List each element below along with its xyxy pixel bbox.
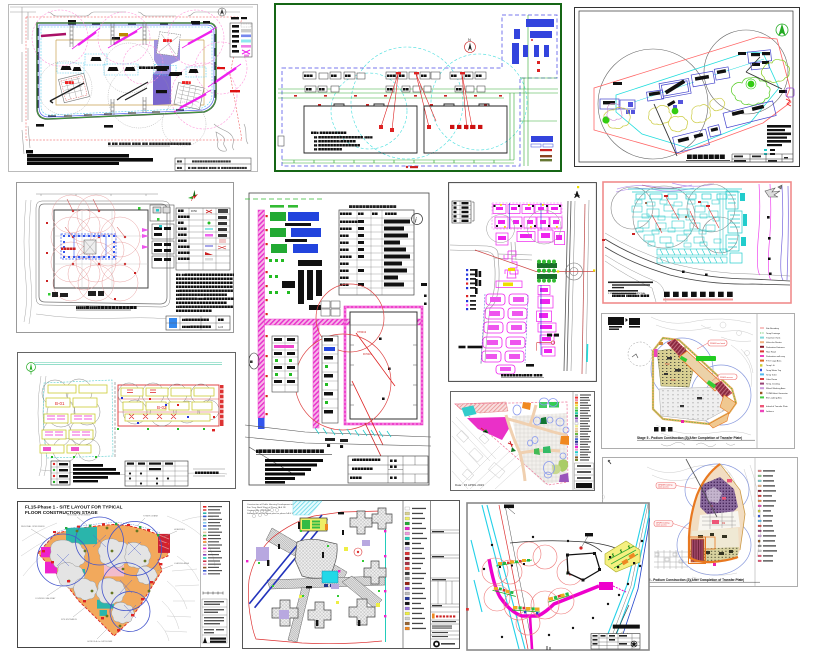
svg-text:TC3: TC3 [671, 379, 676, 382]
svg-text:B-01: B-01 [55, 401, 65, 406]
svg-text:Temp Water Tap: Temp Water Tap [766, 369, 782, 372]
svg-text:2N16F haul road: 2N16F haul road [710, 343, 725, 345]
svg-text:Pedestrian Entrance: Pedestrian Entrance [766, 346, 786, 349]
svg-text:FL15-Phase 1 - SITE LAYOUT FOR: FL15-Phase 1 - SITE LAYOUT FOR TYPICAL [25, 505, 123, 510]
svg-text:TC/MB Hoist Generator: TC/MB Hoist Generator [766, 392, 788, 395]
svg-text:TOWER CRANE: TOWER CRANE [143, 515, 159, 518]
svg-text:TC2: TC2 [665, 363, 670, 366]
svg-text:REGIONAL OPEN SPACE: REGIONAL OPEN SPACE [67, 514, 91, 517]
svg-text:Temp Toilet: Temp Toilet [766, 373, 777, 376]
svg-text:LOADING AREA: LOADING AREA [174, 562, 190, 565]
svg-text:Temp Lift: Temp Lift [766, 364, 775, 367]
svg-text:Temp. Desking: Temp. Desking [766, 384, 781, 386]
svg-text:P.T.O Cage Area: P.T.O Cage Area [766, 360, 782, 363]
svg-text:REGIONAL OPEN SPACE: REGIONAL OPEN SPACE [21, 525, 45, 528]
svg-text:Wheel Washing Area: Wheel Washing Area [766, 387, 786, 390]
svg-text:Cube Room: Cube Room [766, 379, 777, 381]
svg-text:Vehicular Routes: Vehicular Routes [766, 341, 782, 344]
svg-text:2N10F access: 2N10F access [720, 377, 733, 379]
svg-text:SITE ENTRANCE: SITE ENTRANCE [61, 618, 78, 621]
svg-text:Site Boundary: Site Boundary [766, 327, 780, 330]
svg-text:Date : 15 APRIL 2023: Date : 15 APRIL 2023 [455, 483, 484, 487]
svg-text:XT6013: XT6013 [357, 330, 367, 334]
svg-text:Treatment Tank: Treatment Tank [766, 337, 781, 340]
svg-text:ge 5 - Podium Construction (2): ge 5 - Podium Construction (2)(After Com… [644, 578, 744, 582]
svg-text:A-03: A-03 [218, 326, 224, 329]
svg-text:HOARDING: HOARDING [174, 528, 185, 531]
svg-text:zone access: zone access [658, 487, 669, 489]
svg-text:Temp Drainage: Temp Drainage [766, 332, 781, 335]
svg-text:Jetfence: Jetfence [766, 410, 775, 413]
svg-text:Pedestrian walk way: Pedestrian walk way [766, 355, 786, 358]
svg-text:N: N [468, 37, 471, 42]
svg-text:Infeed of Transfer Plate: Infeed of Transfer Plate [766, 405, 788, 408]
svg-text:Ele Loading Area: Ele Loading Area [766, 396, 783, 399]
svg-text:R=50: R=50 [191, 210, 197, 213]
svg-text:GONDOLA c/w CATCH FAN: GONDOLA c/w CATCH FAN [87, 640, 113, 643]
svg-text:COVERED WALKWAY: COVERED WALKWAY [35, 597, 56, 600]
svg-text:Construction of Public Housing: Construction of Public Housing Developme… [247, 503, 293, 506]
svg-text:zone access: zone access [656, 525, 667, 527]
svg-text:Haul Road: Haul Road [766, 351, 777, 353]
svg-text:Stage 5 - Podium Construction: Stage 5 - Podium Construction (2)(After … [637, 436, 742, 440]
svg-text:R=50m: R=50m [363, 352, 371, 356]
